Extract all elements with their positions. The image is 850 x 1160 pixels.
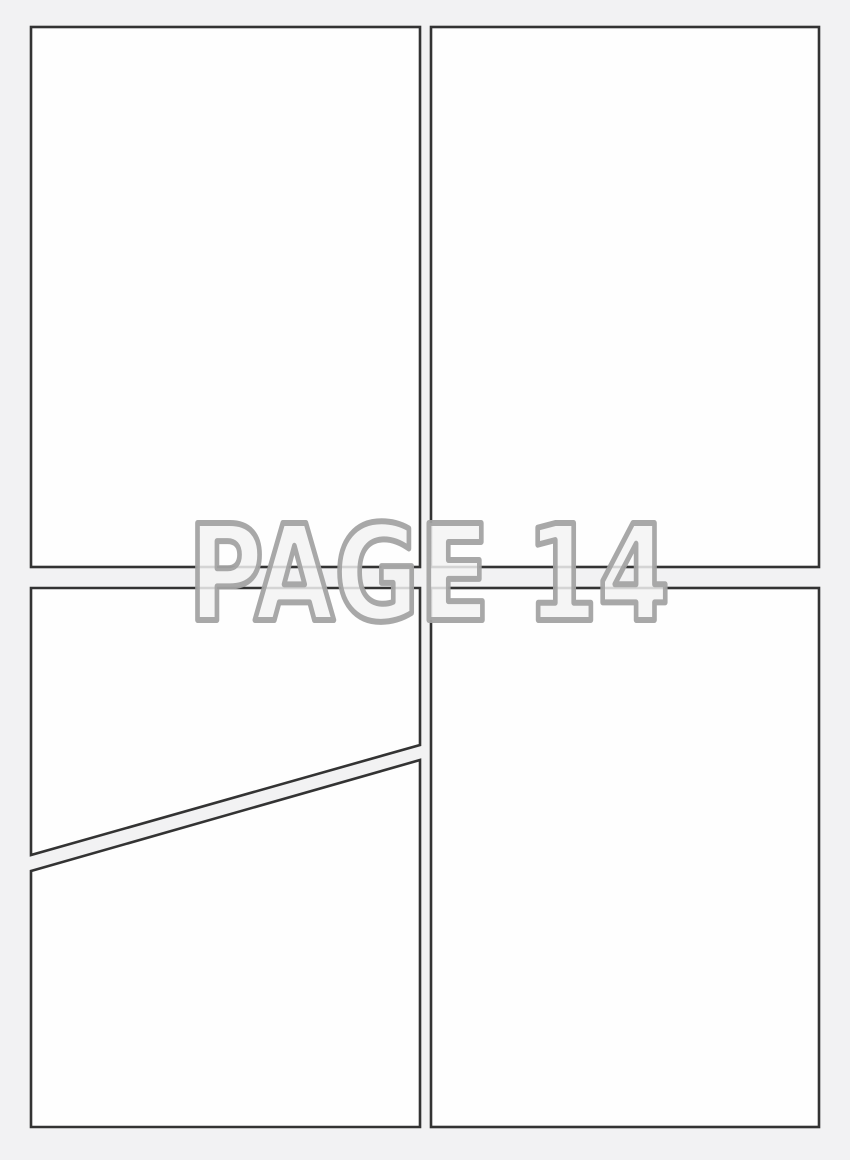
page-canvas: PAGE 14 — [0, 0, 850, 1160]
comic-page-template: PAGE 14 — [0, 0, 850, 1160]
panel-top-left — [31, 27, 420, 567]
panel-top-right — [431, 27, 819, 567]
panel-bottom-right — [431, 588, 819, 1127]
page-number-watermark: PAGE 14 — [188, 498, 670, 652]
